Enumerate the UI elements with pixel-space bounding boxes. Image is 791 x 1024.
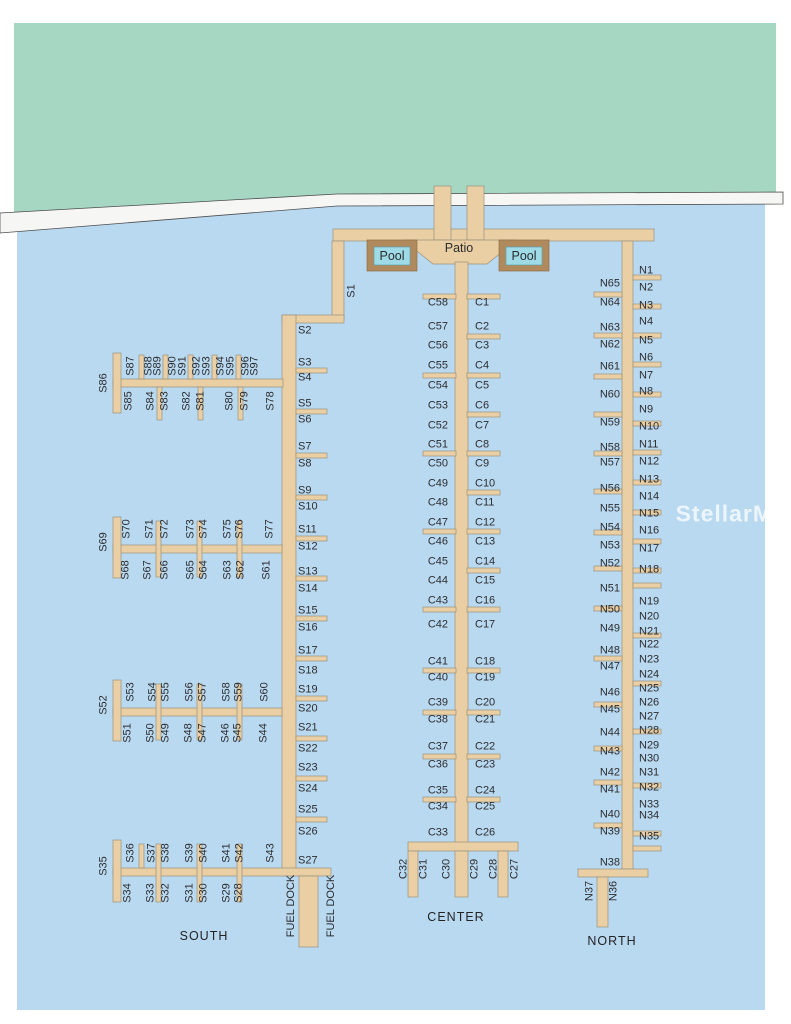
slip-label-c8: C8 [475, 440, 489, 451]
slip-label-s5: S5 [298, 399, 311, 410]
slip-label-s58: S58 [222, 682, 233, 702]
slip-label-s42: S42 [235, 843, 246, 863]
slip-label-s69: S69 [99, 532, 110, 552]
slip-label-n2: N2 [639, 283, 653, 294]
slip-label-n48: N48 [600, 646, 620, 657]
fuel-dock-label-west: FUEL DOCK [285, 875, 297, 938]
slip-label-s72: S72 [160, 519, 171, 539]
slip-label-s27: S27 [298, 856, 318, 867]
slip-label-n60: N60 [600, 390, 620, 401]
slip-label-s29: S29 [222, 883, 233, 903]
slip-label-s44: S44 [259, 723, 270, 743]
slip-label-c37: C37 [428, 742, 448, 753]
slip-label-n43: N43 [600, 747, 620, 758]
slip-label-n5: N5 [639, 336, 653, 347]
slip-label-c45: C45 [428, 557, 448, 568]
slip-label-s15: S15 [298, 606, 318, 617]
fuel-dock-label-east: FUEL DOCK [325, 875, 337, 938]
slip-label-c51: C51 [428, 440, 448, 451]
slip-label-c9: C9 [475, 459, 489, 470]
slip-label-c34: C34 [428, 802, 448, 813]
slip-label-s12: S12 [298, 542, 318, 553]
slip-label-s87: S87 [126, 356, 137, 376]
slip-label-c20: C20 [475, 698, 495, 709]
slip-label-c36: C36 [428, 760, 448, 771]
slip-label-n37: N37 [585, 881, 596, 901]
slip-label-n4: N4 [639, 317, 653, 328]
slip-label-c5: C5 [475, 381, 489, 392]
slip-label-c27: C27 [510, 859, 521, 879]
slip-label-s86: S86 [99, 373, 110, 393]
slip-label-n22: N22 [639, 640, 659, 651]
slip-label-s62: S62 [236, 560, 247, 580]
slip-label-s20: S20 [298, 704, 318, 715]
slip-label-c12: C12 [475, 518, 495, 529]
slip-label-c54: C54 [428, 381, 448, 392]
slip-label-n13: N13 [639, 475, 659, 486]
slip-label-s65: S65 [186, 560, 197, 580]
slip-label-n1: N1 [639, 266, 653, 277]
slip-label-n61: N61 [600, 362, 620, 373]
slip-label-c56: C56 [428, 341, 448, 352]
slip-label-s85: S85 [124, 391, 135, 411]
slip-label-s74: S74 [199, 519, 210, 539]
slip-label-c2: C2 [475, 322, 489, 333]
slip-label-c39: C39 [428, 698, 448, 709]
slip-label-n55: N55 [600, 504, 620, 515]
slip-label-c13: C13 [475, 537, 495, 548]
slip-label-s49: S49 [161, 723, 172, 743]
slip-label-s52: S52 [99, 695, 110, 715]
slip-label-n34: N34 [639, 811, 659, 822]
slip-label-s34: S34 [123, 883, 134, 903]
slip-label-c47: C47 [428, 518, 448, 529]
slip-label-s45: S45 [233, 723, 244, 743]
slip-label-n47: N47 [600, 662, 620, 673]
slip-label-n65: N65 [600, 279, 620, 290]
slip-label-n44: N44 [600, 728, 620, 739]
slip-label-n45: N45 [600, 705, 620, 716]
slip-label-n6: N6 [639, 353, 653, 364]
slip-label-s25: S25 [298, 805, 318, 816]
slip-label-c14: C14 [475, 557, 495, 568]
slip-label-c53: C53 [428, 401, 448, 412]
slip-label-s35: S35 [99, 856, 110, 876]
slip-label-s82: S82 [182, 391, 193, 411]
slip-label-n25: N25 [639, 684, 659, 695]
slip-label-s28: S28 [234, 883, 245, 903]
slip-label-n26: N26 [639, 698, 659, 709]
slip-label-n28: N28 [639, 726, 659, 737]
slip-label-c32: C32 [399, 859, 410, 879]
slip-label-s83: S83 [160, 391, 171, 411]
slip-label-n12: N12 [639, 457, 659, 468]
slip-label-c48: C48 [428, 498, 448, 509]
slip-label-s80: S80 [225, 391, 236, 411]
slip-label-s66: S66 [160, 560, 171, 580]
slip-label-c1: C1 [475, 298, 489, 309]
slip-label-n46: N46 [600, 688, 620, 699]
slip-label-n58: N58 [600, 443, 620, 454]
slip-label-c26: C26 [475, 828, 495, 839]
slip-label-s84: S84 [146, 391, 157, 411]
slip-label-n18: N18 [639, 565, 659, 576]
slip-label-s39: S39 [185, 843, 196, 863]
slip-label-c55: C55 [428, 361, 448, 372]
slip-label-n8: N8 [639, 387, 653, 398]
slip-label-n49: N49 [600, 624, 620, 635]
slip-label-s26: S26 [298, 827, 318, 838]
slip-label-s8: S8 [298, 459, 311, 470]
slip-label-s54: S54 [148, 682, 159, 702]
slip-label-n16: N16 [639, 526, 659, 537]
marina-map: Pool Patio Pool SOUTH CENTER NORTH FUEL … [0, 0, 791, 1024]
slip-label-n27: N27 [639, 712, 659, 723]
stellar-mls-watermark: StellarMLS [676, 501, 791, 528]
slip-label-c49: C49 [428, 479, 448, 490]
slip-label-c29: C29 [470, 859, 481, 879]
slip-label-n54: N54 [600, 523, 620, 534]
slip-label-c41: C41 [428, 657, 448, 668]
slip-label-c18: C18 [475, 657, 495, 668]
slip-label-s76: S76 [235, 519, 246, 539]
slip-label-c10: C10 [475, 479, 495, 490]
slip-label-s11: S11 [298, 525, 317, 536]
slip-label-n30: N30 [639, 754, 659, 765]
slip-label-s17: S17 [298, 646, 318, 657]
slip-label-n20: N20 [639, 612, 659, 623]
slip-label-c23: C23 [475, 760, 495, 771]
slip-label-s31: S31 [185, 883, 196, 903]
slip-label-s55: S55 [161, 682, 172, 702]
slip-label-n24: N24 [639, 670, 659, 681]
slip-label-n15: N15 [639, 509, 659, 520]
slip-label-s38: S38 [161, 843, 172, 863]
slip-label-s77: S77 [265, 519, 276, 539]
slip-label-n42: N42 [600, 768, 620, 779]
slip-label-c35: C35 [428, 786, 448, 797]
slip-label-s95: S95 [226, 356, 237, 376]
slip-label-s4: S4 [298, 373, 311, 384]
slip-label-n50: N50 [600, 605, 620, 616]
slip-label-s89: S89 [153, 356, 164, 376]
slip-label-c52: C52 [428, 421, 448, 432]
slip-label-c15: C15 [475, 576, 495, 587]
slip-label-s37: S37 [147, 843, 158, 863]
slip-label-n53: N53 [600, 541, 620, 552]
slip-label-s67: S67 [143, 560, 154, 580]
slip-label-c19: C19 [475, 673, 495, 684]
slip-label-c16: C16 [475, 596, 495, 607]
slip-label-s10: S10 [298, 502, 318, 513]
slip-label-n3: N3 [639, 301, 653, 312]
slip-label-s75: S75 [223, 519, 234, 539]
slip-label-s73: S73 [186, 519, 197, 539]
slip-label-s68: S68 [121, 560, 132, 580]
slip-label-n38: N38 [600, 858, 620, 869]
slip-label-c28: C28 [489, 859, 500, 879]
center-area-label: CENTER [427, 910, 484, 924]
slip-label-n14: N14 [639, 492, 659, 503]
pool-left-label: Pool [379, 249, 404, 263]
slip-label-n40: N40 [600, 810, 620, 821]
slip-label-n23: N23 [639, 655, 659, 666]
slip-label-n41: N41 [600, 785, 620, 796]
slip-label-s30: S30 [199, 883, 210, 903]
slip-label-s56: S56 [185, 682, 196, 702]
slip-label-n29: N29 [639, 741, 659, 752]
slip-label-n62: N62 [600, 340, 620, 351]
slip-label-c30: C30 [442, 859, 453, 879]
slip-label-c22: C22 [475, 742, 495, 753]
slip-label-n19: N19 [639, 597, 659, 608]
north-area-label: NORTH [587, 934, 636, 948]
slip-label-s50: S50 [146, 723, 157, 743]
slip-label-s22: S22 [298, 744, 318, 755]
slip-label-c38: C38 [428, 715, 448, 726]
slip-label-s36: S36 [126, 843, 137, 863]
slip-label-c11: C11 [475, 498, 494, 509]
slip-label-s3: S3 [298, 358, 311, 369]
slip-label-s7: S7 [298, 442, 311, 453]
pool-right-label: Pool [511, 249, 536, 263]
slip-label-n51: N51 [600, 584, 620, 595]
slip-label-c33: C33 [428, 828, 448, 839]
slip-label-n64: N64 [600, 298, 620, 309]
slip-label-c24: C24 [475, 786, 495, 797]
slip-label-s33: S33 [146, 883, 157, 903]
slip-label-s61: S61 [262, 560, 273, 580]
slip-label-c21: C21 [475, 715, 495, 726]
slip-label-s19: S19 [298, 685, 318, 696]
slip-label-n63: N63 [600, 323, 620, 334]
slip-label-s21: S21 [298, 723, 318, 734]
slip-label-n9: N9 [639, 405, 653, 416]
slip-label-n59: N59 [600, 418, 620, 429]
south-area-label: SOUTH [180, 929, 229, 943]
slip-label-n35: N35 [639, 832, 659, 843]
slip-label-c57: C57 [428, 322, 448, 333]
slip-label-s79: S79 [240, 391, 251, 411]
slip-label-s16: S16 [298, 623, 318, 634]
slip-label-n17: N17 [639, 544, 659, 555]
slip-label-c3: C3 [475, 341, 489, 352]
slip-label-s63: S63 [223, 560, 234, 580]
slip-label-s78: S78 [266, 391, 277, 411]
slip-label-s13: S13 [298, 567, 318, 578]
slip-label-s9: S9 [298, 486, 311, 497]
slip-label-s97: S97 [250, 356, 261, 376]
slip-label-c50: C50 [428, 459, 448, 470]
slip-label-n36: N36 [609, 881, 620, 901]
slip-label-s81: S81 [196, 391, 207, 411]
slip-label-c42: C42 [428, 620, 448, 631]
slip-label-c4: C4 [475, 361, 489, 372]
slip-label-s64: S64 [199, 560, 210, 580]
label-layer: Pool Patio Pool SOUTH CENTER NORTH FUEL … [0, 0, 791, 1024]
slip-label-s41: S41 [222, 843, 233, 863]
slip-label-s43: S43 [266, 843, 277, 863]
slip-label-s70: S70 [122, 519, 133, 539]
slip-label-c46: C46 [428, 537, 448, 548]
slip-label-c17: C17 [475, 620, 495, 631]
slip-label-s59: S59 [234, 682, 245, 702]
slip-label-c40: C40 [428, 673, 448, 684]
slip-label-s51: S51 [123, 723, 134, 743]
slip-label-s23: S23 [298, 763, 318, 774]
slip-label-n57: N57 [600, 458, 620, 469]
slip-label-n31: N31 [639, 768, 659, 779]
slip-label-s24: S24 [298, 784, 318, 795]
slip-label-n10: N10 [639, 422, 659, 433]
slip-label-n11: N11 [639, 440, 658, 451]
slip-label-c25: C25 [475, 802, 495, 813]
slip-label-s18: S18 [298, 666, 318, 677]
slip-label-c7: C7 [475, 421, 489, 432]
slip-label-n7: N7 [639, 371, 653, 382]
slip-label-n39: N39 [600, 827, 620, 838]
slip-label-n56: N56 [600, 484, 620, 495]
slip-label-s6: S6 [298, 415, 311, 426]
slip-label-s93: S93 [202, 356, 213, 376]
slip-label-s46: S46 [221, 723, 232, 743]
slip-label-n21: N21 [639, 627, 659, 638]
slip-label-s14: S14 [298, 584, 318, 595]
slip-label-s71: S71 [145, 519, 156, 539]
slip-label-s53: S53 [126, 682, 137, 702]
patio-label: Patio [445, 241, 474, 255]
slip-label-n32: N32 [639, 783, 659, 794]
slip-label-s2: S2 [298, 326, 311, 337]
slip-label-s57: S57 [198, 682, 209, 702]
slip-label-c58: C58 [428, 298, 448, 309]
slip-label-s60: S60 [260, 682, 271, 702]
slip-label-n52: N52 [600, 559, 620, 570]
slip-label-s1: S1 [347, 284, 358, 297]
slip-label-s91: S91 [178, 356, 189, 376]
slip-label-c43: C43 [428, 596, 448, 607]
slip-label-s48: S48 [184, 723, 195, 743]
slip-label-s47: S47 [198, 723, 209, 743]
slip-label-s32: S32 [161, 883, 172, 903]
slip-label-c44: C44 [428, 576, 448, 587]
slip-label-c6: C6 [475, 401, 489, 412]
slip-label-s40: S40 [199, 843, 210, 863]
slip-label-c31: C31 [419, 859, 430, 879]
